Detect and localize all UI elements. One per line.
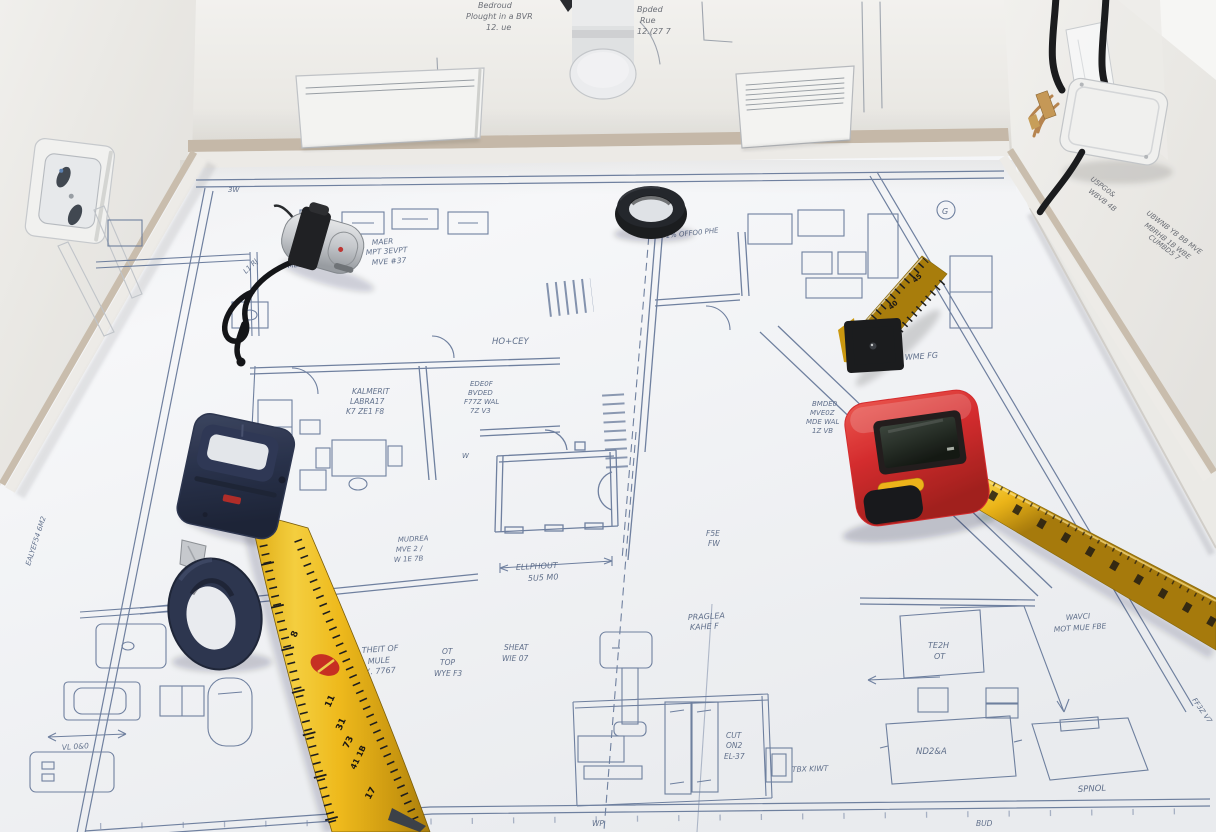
annotation-edeof-4: 7Z V3: [470, 407, 491, 415]
annotation-bmdeo-3: MDE WAL: [806, 418, 839, 426]
annotation-wp: WP: [592, 819, 604, 828]
annotation-ot-3: WYE F3: [434, 669, 462, 678]
annotation-praglea-2: KAHE F: [690, 621, 720, 632]
annotation-ot-1: OT: [442, 647, 454, 656]
annotation-kalmerit-2: LABRA17: [350, 397, 385, 406]
box-wall-shadow: [1063, 160, 1173, 184]
wall-note-right-1: Bpded: [637, 5, 664, 14]
annotation-edeof-1: EDE0F: [470, 380, 494, 388]
annotation-mudrea-1: MUDREA: [398, 534, 429, 544]
wall-note-left-1: Bedroud: [478, 1, 513, 10]
wall-note-left-2: Plought in a BVR: [466, 12, 533, 21]
wall-note-right-2: Rue: [640, 16, 656, 25]
annotation-bmdeo-2: MVE0Z: [810, 409, 835, 417]
annotation-mudrea-2: MVE 2 /: [396, 545, 424, 554]
annotation-vloo: VL 0&0: [62, 741, 90, 752]
annotation-mudrea-3: W 1E 7B: [394, 554, 424, 564]
wall-note-left-3: 12. ue: [486, 23, 511, 32]
annotation-circled-g: G: [942, 207, 948, 216]
annotation-tezh-2: OT: [934, 652, 946, 661]
photo-scene: Bedroud Plought in a BVR 12. ue Bpded Ru…: [0, 0, 1216, 832]
annotation-edeof-2: BVDED: [468, 389, 493, 397]
annotation-bud: BUD: [976, 819, 993, 828]
annotation-ot-2: TOP: [440, 658, 455, 667]
annotation-cut-1: CUT: [726, 731, 743, 740]
panel-heater-left: [296, 68, 484, 149]
annotation-fse-2: FW: [708, 539, 720, 548]
annotation-spnol: SPNOL: [1078, 784, 1107, 795]
annotation-theit-2: MULE: [368, 655, 392, 666]
annotation-ndza: ND2&A: [916, 747, 947, 757]
navy-tape-head: [174, 411, 297, 542]
scene-canvas: Bedroud Plought in a BVR 12. ue Bpded Ru…: [0, 0, 1216, 832]
annotation-w: W: [462, 452, 470, 460]
annotation-tezh-1: TE2H: [928, 641, 949, 650]
annotation-wavci-1: WAVCI: [1066, 611, 1092, 622]
annotation-fse-1: F5E: [706, 529, 720, 538]
annotation-bmdeo-1: BMDE0: [812, 400, 838, 408]
annotation-edeof-3: F77Z WAL: [464, 398, 499, 406]
annotation-ellphout-2: 5U5 M0: [528, 572, 559, 583]
annotation-tick-tl: 3W: [228, 186, 240, 194]
panel-heater-right: [736, 66, 854, 149]
annotation-sheat-1: SHEAT: [504, 643, 530, 652]
wall-note-right-3: 12.(27 7: [637, 27, 672, 36]
annotation-cut-3: EL-37: [724, 752, 745, 761]
annotation-kalmerit-1: KALMERIT: [352, 387, 391, 396]
annotation-cut-2: ON2: [726, 741, 743, 750]
black-ring: [615, 186, 687, 239]
annotation-kalmerit-3: K7 ZE1 F8: [346, 407, 384, 416]
annotation-sheat-2: WIE 07: [502, 654, 529, 663]
annotation-bmdeo-4: 1Z VB: [812, 427, 833, 435]
annotation-tbx: TBX KIWT: [792, 764, 830, 774]
annotation-hocey: HO+CEY: [492, 337, 530, 347]
